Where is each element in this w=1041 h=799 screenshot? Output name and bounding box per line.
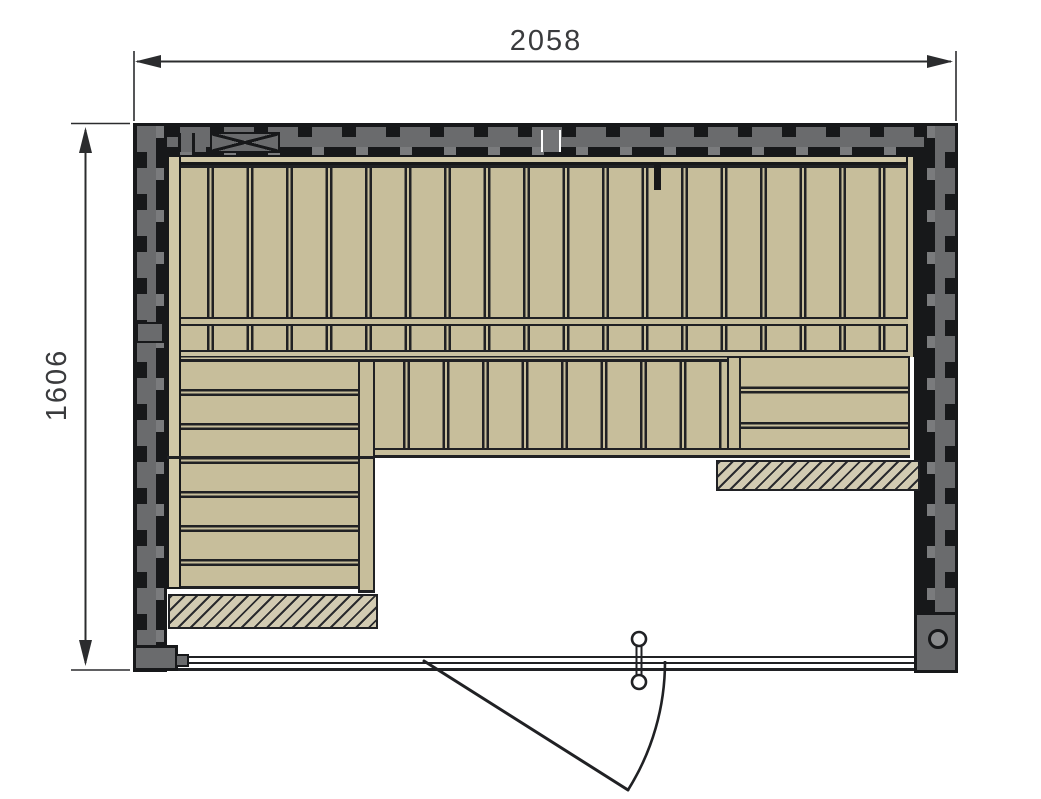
left-wall [133,123,167,672]
right-wall [924,123,958,673]
left-step-bench [181,362,358,589]
height-dimension-label: 1606 [42,340,72,430]
middle-bench-front-edge [362,448,727,458]
door-leaf [424,661,628,790]
glass-front-line-inner [167,656,916,658]
door-handle-knob-bottom [632,675,646,689]
upper-bench-seam [181,317,908,326]
door-swing-arc [628,661,665,790]
top-wall-panel-joint [541,130,561,152]
left-wall-outer-studs [137,126,147,669]
top-dimension-arrow-right [927,55,953,68]
top-dimension-arrow-left [135,55,161,68]
left-bench-step-edge [167,456,374,459]
door-handle-knob-top [632,632,646,646]
left-wall-inner-studs [156,126,164,669]
right-bench-planks [741,358,910,448]
right-step-platform-hatch [716,460,920,491]
right-bench [727,356,910,458]
front-left-corner-tab [175,654,189,667]
right-bench-left-rail [727,358,741,458]
bench-corner-joint [654,163,661,190]
left-bench-right-rail [358,362,375,593]
left-dimension-arrow-up [79,127,92,153]
left-dimension-arrow-down [79,640,92,666]
right-wall-inner-studs [927,126,935,670]
front-right-corner-post [914,612,958,673]
middle-bench-planks [375,362,727,448]
left-side-rail [167,152,181,589]
glass-front-line-middle [167,662,916,664]
top-wall-stud-pair [178,133,206,152]
width-dimension-label: 2058 [481,24,611,58]
glass-front-line-outer [133,668,958,671]
middle-bench [362,362,727,458]
floor-plan: 2058 1606 [0,0,1041,799]
left-wall-core [147,126,156,669]
right-wall-core [935,126,945,670]
left-step-platform-hatch [168,594,378,629]
left-wall-panel-joint [136,322,164,343]
front-left-corner-post [133,645,178,671]
right-wall-outer-studs [945,126,955,670]
wall-cross-brace [210,132,280,153]
corner-pipe-icon [928,629,948,649]
right-bench-front-edge [727,448,910,458]
